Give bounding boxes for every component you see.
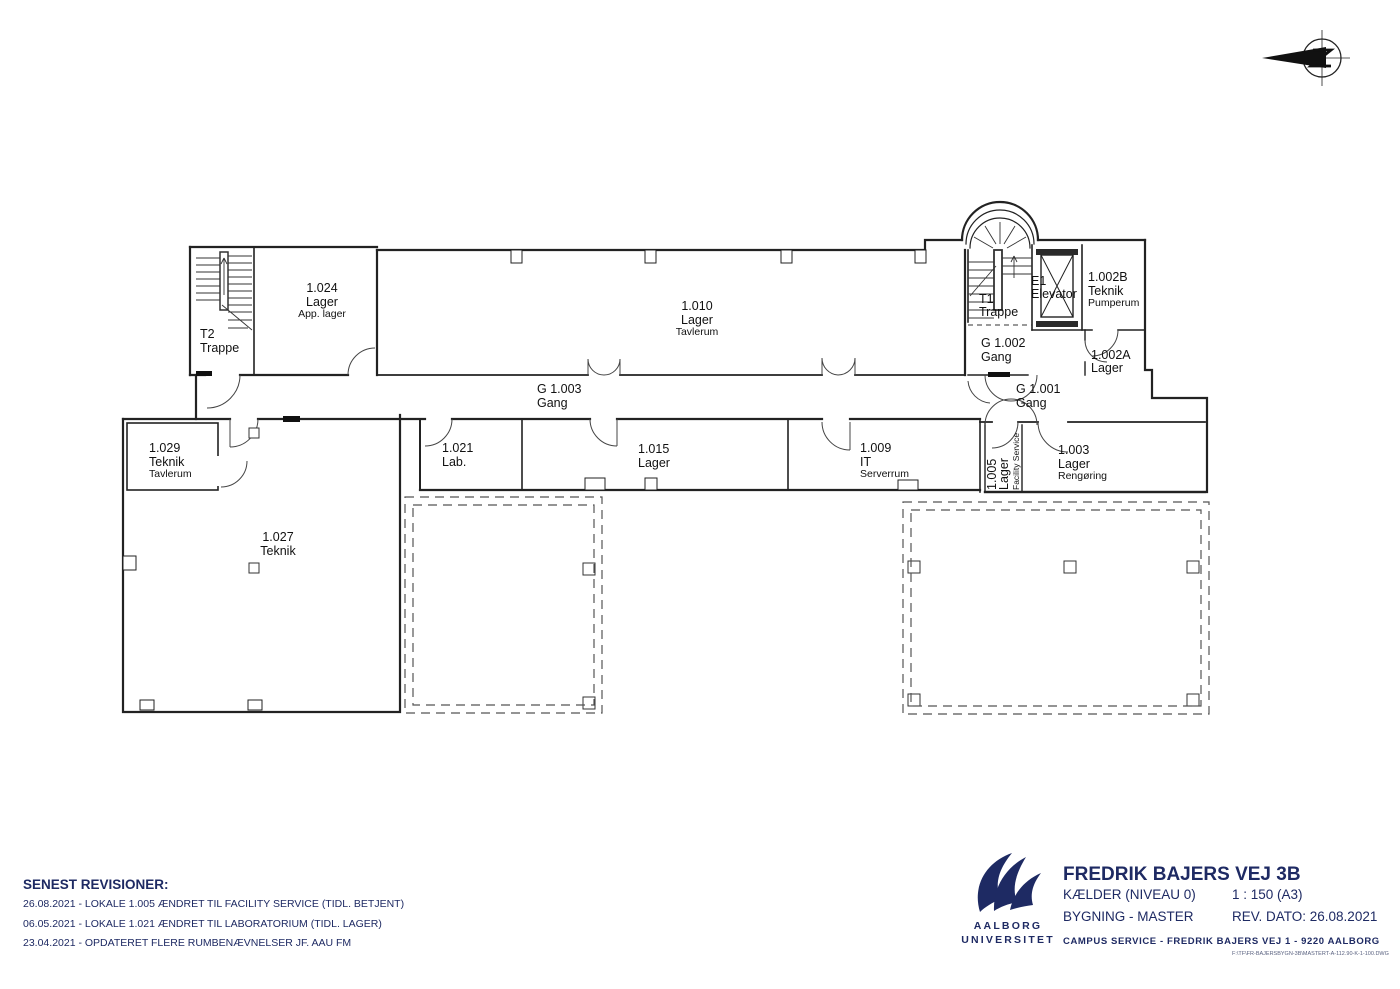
room-label-1005: 1.005 Lager Facility Service [985,433,1021,490]
aau-logo: AALBORG UNIVERSITET [961,853,1055,946]
svg-text:1.002A: 1.002A [1091,348,1131,362]
revisions-heading: SENEST REVISIONER: [23,877,169,892]
logo-text-2: UNIVERSITET [961,934,1055,946]
svg-text:App. lager: App. lager [298,308,346,320]
svg-text:1.002B: 1.002B [1088,270,1128,284]
svg-text:1.015: 1.015 [638,442,669,456]
svg-text:1.009: 1.009 [860,441,891,455]
floor-plan: T2 Trappe 1.024 Lager App. lager 1.010 L… [0,0,1400,989]
svg-text:Tavlerum: Tavlerum [149,468,192,480]
svg-text:G 1.002: G 1.002 [981,336,1026,350]
room-label-1024: 1.024 Lager App. lager [298,281,346,320]
svg-text:1.024: 1.024 [306,281,337,295]
svg-text:Elevator: Elevator [1031,287,1077,301]
room-label-g1002: G 1.002 Gang [981,336,1026,364]
svg-text:Rengøring: Rengøring [1058,470,1107,482]
svg-text:Gang: Gang [537,396,568,410]
svg-text:Facility Service: Facility Service [1011,433,1021,490]
svg-text:1.010: 1.010 [681,299,712,313]
revision-item: 26.08.2021 - LOKALE 1.005 ÆNDRET TIL FAC… [23,898,404,910]
svg-text:T1: T1 [979,292,994,306]
svg-text:Lager: Lager [638,456,670,470]
svg-text:Teknik: Teknik [1088,284,1124,298]
svg-text:1.029: 1.029 [149,441,180,455]
svg-text:E1: E1 [1031,274,1046,288]
svg-text:T2: T2 [200,327,215,341]
svg-text:Trappe: Trappe [979,305,1018,319]
svg-text:Lager: Lager [1058,457,1090,471]
stair-t2 [196,252,252,330]
room-label-1002b: 1.002B Teknik Pumperum [1088,270,1140,309]
file-path: F:\TF\FR-BAJERSBYGN-3B\MASTERT-A-112.90-… [1232,951,1389,957]
svg-text:G 1.003: G 1.003 [537,382,582,396]
dashed-overhang-areas [405,497,1209,714]
campus-service-line: CAMPUS SERVICE - FREDRIK BAJERS VEJ 1 - … [1063,936,1380,947]
svg-text:Lager: Lager [997,458,1011,490]
svg-text:IT: IT [860,455,871,469]
room-label-g1001: G 1.001 Gang [1016,382,1061,410]
building-label: BYGNING - MASTER [1063,909,1194,924]
svg-text:Gang: Gang [1016,396,1047,410]
window-bars [196,371,1010,422]
room-labels: T2 Trappe 1.024 Lager App. lager 1.010 L… [149,270,1140,558]
svg-text:1.027: 1.027 [262,530,293,544]
door-gap [214,456,222,486]
room-label-1015: 1.015 Lager [638,442,670,470]
svg-text:Gang: Gang [981,350,1012,364]
svg-text:Tavlerum: Tavlerum [676,326,719,338]
svg-text:Teknik: Teknik [260,544,296,558]
svg-text:1.021: 1.021 [442,441,473,455]
columns [249,428,1199,709]
svg-text:Teknik: Teknik [149,455,185,469]
level-label: KÆLDER (NIVEAU 0) [1063,887,1196,902]
rev-date-label: REV. DATO: 26.08.2021 [1232,909,1377,924]
room-label-t2: T2 Trappe [200,327,239,355]
pilasters [123,250,926,710]
svg-text:Lager: Lager [306,295,338,309]
svg-text:Lager: Lager [681,313,713,327]
room-label-1002a: 1.002A Lager [1091,348,1131,375]
svg-text:Pumperum: Pumperum [1088,297,1140,309]
drawing-title: FREDRIK BAJERS VEJ 3B [1063,864,1301,885]
revision-item: 23.04.2021 - OPDATERET FLERE RUMBENÆVNEL… [23,937,351,949]
svg-text:Serverrum: Serverrum [860,468,909,480]
svg-text:Trappe: Trappe [200,341,239,355]
room-label-t1: T1 Trappe [979,292,1018,319]
room-label-g1003: G 1.003 Gang [537,382,582,410]
title-block: FREDRIK BAJERS VEJ 3B KÆLDER (NIVEAU 0) … [1063,864,1389,957]
room-label-1027: 1.027 Teknik [260,530,296,558]
revision-item: 06.05.2021 - LOKALE 1.021 ÆNDRET TIL LAB… [23,918,382,930]
room-label-1010: 1.010 Lager Tavlerum [676,299,719,338]
room-label-1029: 1.029 Teknik Tavlerum [149,441,192,480]
svg-text:1.003: 1.003 [1058,443,1089,457]
room-label-1009: 1.009 IT Serverrum [860,441,909,480]
logo-text-1: AALBORG [974,920,1042,932]
scale-label: 1 : 150 (A3) [1232,887,1303,902]
revision-notes: SENEST REVISIONER: 26.08.2021 - LOKALE 1… [23,877,404,949]
svg-text:G 1.001: G 1.001 [1016,382,1061,396]
svg-text:Lab.: Lab. [442,455,466,469]
svg-text:Lager: Lager [1091,361,1123,375]
room-label-1021: 1.021 Lab. [442,441,473,469]
drawing-sheet: T2 Trappe 1.024 Lager App. lager 1.010 L… [0,0,1400,989]
room-label-e1: E1 Elevator [1031,274,1077,301]
room-label-1003: 1.003 Lager Rengøring [1058,443,1107,482]
north-arrow-icon [1262,30,1350,86]
